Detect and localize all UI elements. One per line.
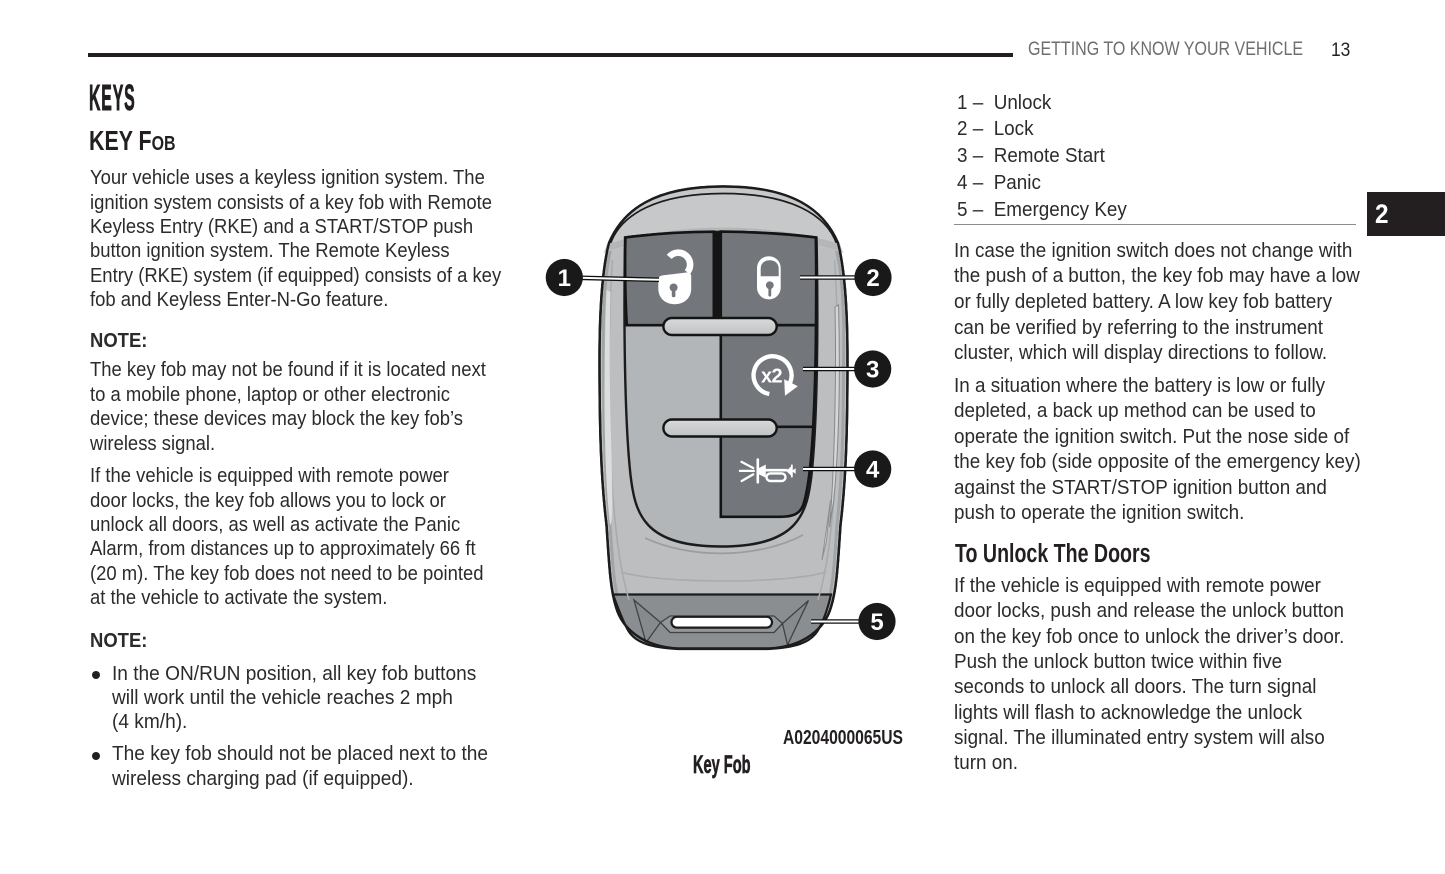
svg-text:x2: x2 xyxy=(761,366,783,388)
svg-text:5: 5 xyxy=(870,609,883,636)
svg-text:1: 1 xyxy=(558,265,571,292)
svg-text:2: 2 xyxy=(866,265,879,292)
svg-text:3: 3 xyxy=(866,356,879,383)
svg-text:4: 4 xyxy=(866,456,880,483)
